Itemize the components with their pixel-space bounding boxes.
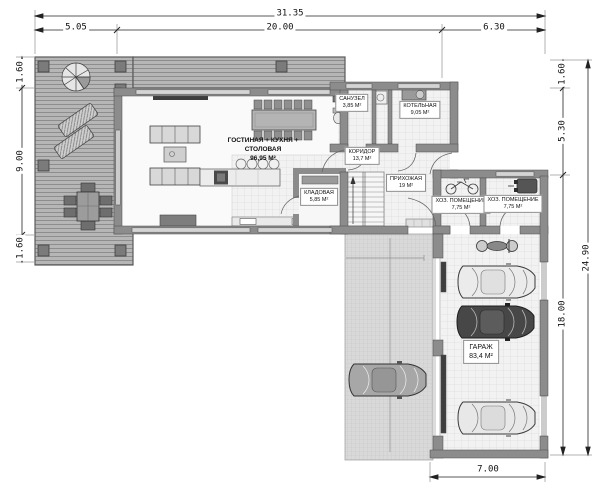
wall-a-right-lower xyxy=(340,172,348,234)
dining-table-set xyxy=(252,100,316,140)
doormat xyxy=(406,219,436,227)
wall-b-right xyxy=(450,82,458,152)
spiral-stair-icon xyxy=(62,63,90,91)
wall-c-right-1 xyxy=(540,176,548,262)
driveway xyxy=(345,234,433,460)
room-area: 96,95 М² xyxy=(215,154,311,163)
car-garage-2 xyxy=(457,303,534,341)
boiler xyxy=(402,89,426,100)
garage-pier xyxy=(433,340,443,356)
garage-door-leaf xyxy=(441,262,446,292)
room-label-kotelnaya: КОТЕЛЬНАЯ 9,05 М² xyxy=(399,101,440,119)
room-label-prihozhaya: ПРИХОЖАЯ 19 М² xyxy=(386,174,426,192)
closet xyxy=(302,176,338,184)
car-garage-3 xyxy=(458,399,535,437)
tv-console xyxy=(153,96,208,100)
floor-plan: ГОСТИНАЯ + КУХНЯ + СТОЛОВАЯ 96,95 М² КЛА… xyxy=(0,0,600,500)
dim-right-total: 24.90 xyxy=(583,242,592,273)
room-label-hoz2: ХОЗ. ПОМЕЩЕНИЕ 7,75 М² xyxy=(483,195,542,213)
staircase xyxy=(344,172,384,226)
wall-c-bottom xyxy=(430,450,548,458)
dim-left-seg2: 9.00 xyxy=(17,148,26,174)
sink xyxy=(240,219,256,225)
wall-b-bottom xyxy=(330,226,408,234)
dim-top-seg2: 20.00 xyxy=(264,24,295,33)
sofa xyxy=(150,126,200,143)
car-garage-1 xyxy=(458,263,535,301)
room-label-living: ГОСТИНАЯ + КУХНЯ + СТОЛОВАЯ 96,95 М² xyxy=(212,136,314,164)
sofa xyxy=(150,168,200,185)
wall-c-right-2 xyxy=(540,300,548,396)
dim-left-seg3: 1.60 xyxy=(17,235,26,261)
coffee-table xyxy=(164,147,186,162)
dim-right-seg2: 5.30 xyxy=(559,118,568,144)
car-driveway xyxy=(349,361,426,399)
dim-right-seg1: 1.60 xyxy=(559,61,568,87)
dim-left-seg1: 1.60 xyxy=(17,59,26,85)
garage-pier xyxy=(433,234,443,258)
dim-bottom-seg1: 7.00 xyxy=(475,466,501,475)
floor-plan-drawing xyxy=(0,0,600,500)
room-label-sanuzel: САНУЗЕЛ 3,85 М² xyxy=(335,94,368,112)
dim-right-seg3: 18.00 xyxy=(559,298,568,329)
room-label-hoz1: ХОЗ. ПОМЕЩЕНИЕ 7,75 М² xyxy=(431,196,490,214)
room-label-koridor: КОРИДОР 13,7 М² xyxy=(345,147,380,165)
dim-top-seg1: 5.05 xyxy=(63,24,89,33)
dim-top-seg3: 6.30 xyxy=(481,24,507,33)
dim-top-total: 31.35 xyxy=(274,10,305,19)
room-label-kladovaya: КЛАДОВАЯ 5,85 М² xyxy=(300,188,338,206)
garage-door-leaf xyxy=(441,355,446,433)
room-name: ГОСТИНАЯ + КУХНЯ + СТОЛОВАЯ xyxy=(215,137,311,155)
room-label-garage: ГАРАЖ 83,4 М² xyxy=(463,340,499,364)
